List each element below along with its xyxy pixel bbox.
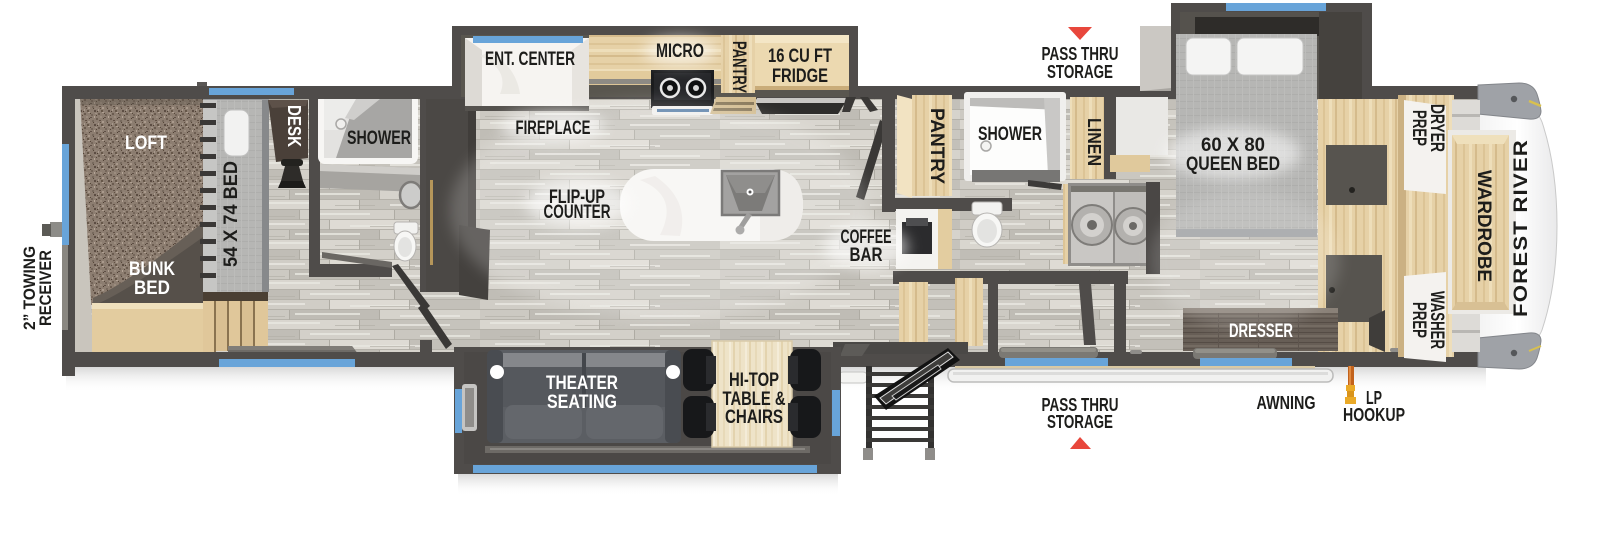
svg-text:COUNTER: COUNTER — [544, 202, 611, 223]
svg-text:FIREPLACE: FIREPLACE — [516, 118, 591, 139]
svg-text:THEATER: THEATER — [546, 373, 618, 394]
svg-text:CHAIRS: CHAIRS — [725, 407, 783, 428]
svg-text:PREP: PREP — [1408, 302, 1429, 338]
svg-text:QUEEN BED: QUEEN BED — [1186, 154, 1280, 175]
svg-text:LOFT: LOFT — [125, 133, 167, 154]
svg-text:BED: BED — [134, 278, 170, 299]
svg-text:PANTRY: PANTRY — [926, 108, 947, 184]
svg-text:WARDROBE: WARDROBE — [1473, 170, 1494, 282]
svg-text:60 X 80: 60 X 80 — [1201, 135, 1265, 156]
svg-text:SHOWER: SHOWER — [347, 128, 411, 149]
svg-text:PREP: PREP — [1408, 110, 1429, 146]
svg-text:MICRO: MICRO — [656, 41, 704, 62]
svg-text:HI-TOP: HI-TOP — [729, 370, 779, 391]
svg-text:HOOKUP: HOOKUP — [1343, 405, 1405, 425]
svg-text:54 X 74 BED: 54 X 74 BED — [221, 161, 242, 267]
svg-text:SEATING: SEATING — [547, 392, 617, 413]
svg-text:FRIDGE: FRIDGE — [772, 66, 828, 87]
svg-text:ENT. CENTER: ENT. CENTER — [485, 49, 575, 70]
svg-text:LINEN: LINEN — [1084, 118, 1104, 166]
svg-text:16 CU FT: 16 CU FT — [768, 46, 832, 67]
svg-text:DESK: DESK — [284, 105, 304, 147]
svg-text:PASS THRU: PASS THRU — [1042, 44, 1119, 64]
svg-text:SHOWER: SHOWER — [978, 124, 1042, 145]
svg-text:BAR: BAR — [850, 245, 883, 266]
svg-text:STORAGE: STORAGE — [1047, 62, 1113, 82]
svg-text:BUNK: BUNK — [129, 259, 175, 280]
svg-text:STORAGE: STORAGE — [1047, 412, 1113, 432]
svg-text:DRESSER: DRESSER — [1229, 321, 1293, 342]
svg-text:RECEIVER: RECEIVER — [36, 250, 55, 326]
svg-text:FOREST RIVER: FOREST RIVER — [1511, 139, 1532, 317]
svg-text:PANTRY: PANTRY — [728, 41, 749, 93]
svg-text:AWNING: AWNING — [1257, 393, 1316, 413]
